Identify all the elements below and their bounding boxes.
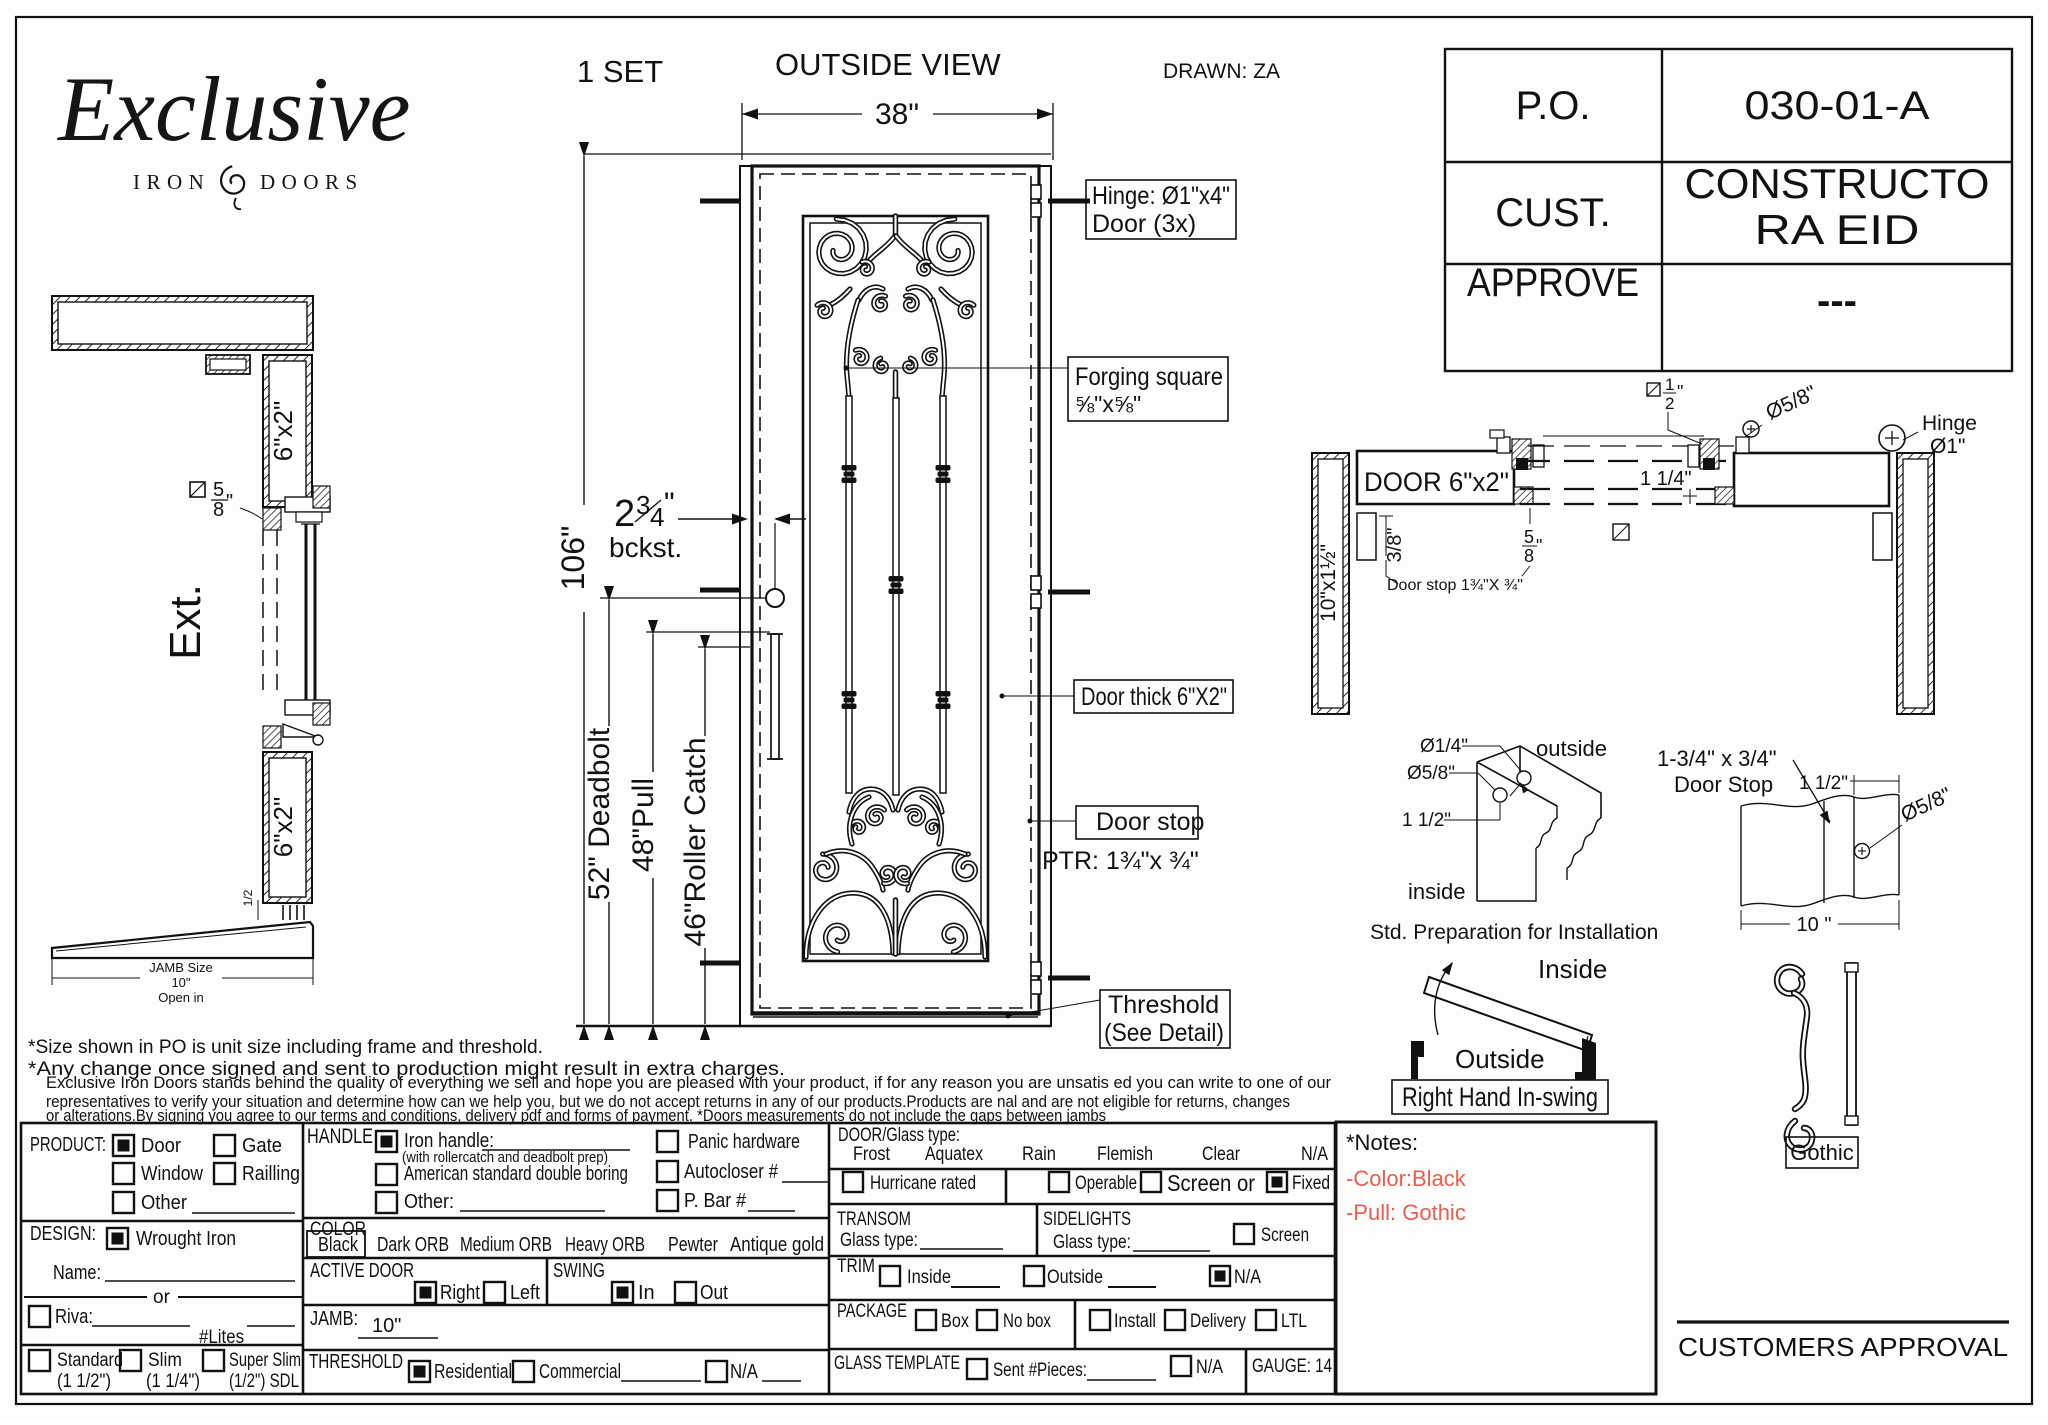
svg-text:4: 4 xyxy=(650,502,664,532)
svg-text:N/A: N/A xyxy=(1301,1144,1328,1165)
svg-text:#Lites: #Lites xyxy=(199,1327,244,1348)
svg-text:JAMB:: JAMB: xyxy=(310,1308,358,1330)
svg-text:Right: Right xyxy=(440,1282,480,1304)
svg-text:SIDELIGHTS: SIDELIGHTS xyxy=(1043,1209,1131,1230)
svg-text:Left: Left xyxy=(510,1282,540,1304)
svg-text:": " xyxy=(1677,382,1683,402)
svg-text:Glass type:: Glass type: xyxy=(1053,1232,1131,1253)
svg-text:Gothic: Gothic xyxy=(1790,1140,1854,1165)
svg-text:1/2: 1/2 xyxy=(241,889,255,906)
svg-text:Outside: Outside xyxy=(1047,1267,1103,1288)
svg-text:Heavy ORB: Heavy ORB xyxy=(565,1234,645,1256)
svg-text:1 SET: 1 SET xyxy=(577,54,663,89)
svg-text:": " xyxy=(664,487,675,520)
svg-text:5: 5 xyxy=(213,479,224,501)
svg-text:8: 8 xyxy=(1524,546,1534,566)
svg-text:LTL: LTL xyxy=(1281,1311,1307,1332)
svg-text:OUTSIDE VIEW: OUTSIDE VIEW xyxy=(775,47,1001,82)
svg-text:PRODUCT:: PRODUCT: xyxy=(30,1134,106,1156)
svg-text:10": 10" xyxy=(372,1315,401,1337)
svg-text:(See Detail): (See Detail) xyxy=(1104,1019,1224,1047)
svg-text:P.O.: P.O. xyxy=(1516,84,1591,128)
svg-text:030-01-A: 030-01-A xyxy=(1745,84,1930,128)
svg-text:No box: No box xyxy=(1003,1311,1051,1332)
svg-text:JAMB Size: JAMB Size xyxy=(149,960,213,975)
svg-text:Ø5/8": Ø5/8" xyxy=(1407,763,1455,784)
svg-text:TRANSOM: TRANSOM xyxy=(837,1209,911,1230)
svg-text:Dark ORB: Dark ORB xyxy=(377,1234,449,1256)
svg-text:Super Slim: Super Slim xyxy=(229,1350,301,1371)
svg-text:---: --- xyxy=(1817,279,1857,323)
svg-text:outside: outside xyxy=(1536,736,1607,761)
svg-text:Ø1": Ø1" xyxy=(1930,435,1965,458)
svg-text:Aquatex: Aquatex xyxy=(925,1144,983,1165)
svg-text:Residential: Residential xyxy=(434,1361,512,1383)
svg-text:Riva:: Riva: xyxy=(55,1306,93,1328)
svg-text:1 1/2": 1 1/2" xyxy=(1402,810,1451,831)
svg-text:Antique gold: Antique gold xyxy=(730,1234,824,1256)
svg-text:Screen: Screen xyxy=(1261,1225,1309,1246)
svg-text:2: 2 xyxy=(614,493,635,535)
svg-text:RA EID: RA EID xyxy=(1755,206,1920,253)
svg-text:": " xyxy=(226,491,233,513)
svg-text:3/8": 3/8" xyxy=(1384,528,1406,563)
svg-text:Ext.: Ext. xyxy=(161,584,210,660)
svg-text:Install: Install xyxy=(1114,1311,1156,1332)
svg-text:52" Deadbolt: 52" Deadbolt xyxy=(583,727,616,900)
svg-text:Door (3x): Door (3x) xyxy=(1092,210,1196,238)
svg-text:6"x2": 6"x2" xyxy=(268,797,298,857)
svg-text:bckst.: bckst. xyxy=(609,532,682,563)
svg-text:38": 38" xyxy=(875,98,919,131)
svg-text:DRAWN: ZA: DRAWN: ZA xyxy=(1163,60,1280,83)
svg-text:SWING: SWING xyxy=(553,1260,605,1282)
svg-text:2: 2 xyxy=(1665,394,1674,413)
svg-text:Out: Out xyxy=(700,1282,728,1304)
svg-text:": " xyxy=(1536,536,1542,556)
svg-text:6"x2": 6"x2" xyxy=(268,401,298,461)
svg-text:Railling: Railling xyxy=(242,1163,300,1185)
svg-text:Clear: Clear xyxy=(1202,1144,1241,1165)
svg-text:Door: Door xyxy=(141,1135,181,1157)
svg-text:Fixed: Fixed xyxy=(1292,1173,1330,1194)
svg-text:Box: Box xyxy=(941,1311,969,1332)
svg-text:5: 5 xyxy=(1524,527,1534,547)
svg-text:TRIM: TRIM xyxy=(837,1256,875,1277)
svg-text:DESIGN:: DESIGN: xyxy=(30,1223,96,1245)
svg-text:CONSTRUCTO: CONSTRUCTO xyxy=(1685,160,1990,207)
svg-text:Other: Other xyxy=(141,1192,187,1214)
svg-text:1 1/4": 1 1/4" xyxy=(1640,468,1692,490)
svg-text:(1 1/2"): (1 1/2") xyxy=(57,1371,111,1392)
svg-text:Pewter: Pewter xyxy=(668,1234,718,1256)
svg-text:Panic hardware: Panic hardware xyxy=(688,1131,800,1153)
svg-text:Threshold: Threshold xyxy=(1108,991,1219,1019)
svg-text:Other:: Other: xyxy=(404,1191,454,1213)
svg-text:CUSTOMERS APPROVAL: CUSTOMERS APPROVAL xyxy=(1678,1332,2008,1362)
svg-text:Operable: Operable xyxy=(1075,1173,1137,1194)
svg-text:46"Roller Catch: 46"Roller Catch xyxy=(679,737,712,946)
svg-text:8: 8 xyxy=(213,499,224,521)
svg-text:⅝"x⅝": ⅝"x⅝" xyxy=(1075,391,1141,417)
svg-text:Wrought Iron: Wrought Iron xyxy=(136,1228,236,1250)
svg-text:Hurricane rated: Hurricane rated xyxy=(870,1173,976,1194)
svg-text:Glass type:: Glass type: xyxy=(840,1230,918,1251)
svg-text:Outside: Outside xyxy=(1455,1044,1545,1074)
svg-text:or: or xyxy=(153,1287,171,1308)
svg-text:Autocloser #: Autocloser # xyxy=(684,1161,779,1183)
svg-text:ACTIVE DOOR: ACTIVE DOOR xyxy=(310,1260,414,1282)
svg-text:Open in: Open in xyxy=(158,990,204,1005)
svg-text:DOOR 6"x2": DOOR 6"x2" xyxy=(1364,467,1509,497)
svg-text:Ø1/4": Ø1/4" xyxy=(1420,736,1468,757)
svg-text:(1/2") SDL: (1/2") SDL xyxy=(229,1371,299,1392)
svg-text:10"x1½": 10"x1½" xyxy=(1317,544,1340,622)
svg-text:Gate: Gate xyxy=(242,1135,282,1157)
svg-text:Door thick 6"X2": Door thick 6"X2" xyxy=(1081,683,1227,711)
svg-text:1: 1 xyxy=(1665,375,1674,394)
svg-text:Door stop 1¾"X ¾": Door stop 1¾"X ¾" xyxy=(1387,577,1523,594)
svg-text:Rain: Rain xyxy=(1022,1144,1056,1165)
svg-text:HANDLE: HANDLE xyxy=(307,1125,373,1148)
svg-text:-Color:Black: -Color:Black xyxy=(1346,1166,1467,1191)
svg-text:(1 1/4"): (1 1/4") xyxy=(146,1371,200,1392)
svg-text:inside: inside xyxy=(1408,879,1465,904)
svg-text:Door Stop: Door Stop xyxy=(1674,772,1773,797)
svg-text:Window: Window xyxy=(141,1163,203,1185)
svg-text:Flemish: Flemish xyxy=(1097,1144,1153,1165)
svg-text:Right Hand In-swing: Right Hand In-swing xyxy=(1402,1082,1598,1112)
svg-text:Inside: Inside xyxy=(907,1267,951,1288)
svg-text:Std. Preparation for Installat: Std. Preparation for Installation xyxy=(1370,921,1658,944)
svg-text:Exclusive Iron Doors stands be: Exclusive Iron Doors stands behind the q… xyxy=(46,1074,1332,1092)
svg-text:Black: Black xyxy=(318,1234,359,1256)
svg-text:Screen or: Screen or xyxy=(1167,1170,1255,1196)
svg-text:48"Pull: 48"Pull xyxy=(627,778,660,872)
svg-text:Door stop: Door stop xyxy=(1096,808,1204,836)
svg-text:DOORS: DOORS xyxy=(260,170,364,194)
svg-text:APPROVE: APPROVE xyxy=(1467,261,1639,305)
svg-text:10 ": 10 " xyxy=(1797,914,1832,936)
svg-text:In: In xyxy=(638,1282,655,1304)
svg-text:Delivery: Delivery xyxy=(1190,1311,1246,1332)
svg-text:PACKAGE: PACKAGE xyxy=(837,1301,907,1322)
svg-text:*Notes:: *Notes: xyxy=(1346,1130,1418,1155)
svg-text:1-3/4" x 3/4": 1-3/4" x 3/4" xyxy=(1657,746,1777,771)
svg-text:Commercial: Commercial xyxy=(539,1361,621,1383)
svg-text:American standard double borin: American standard double boring xyxy=(404,1163,628,1185)
svg-text:Sent #Pieces:: Sent #Pieces: xyxy=(993,1360,1087,1381)
svg-text:P. Bar #: P. Bar # xyxy=(684,1190,747,1212)
svg-text:Forging square: Forging square xyxy=(1075,363,1223,391)
svg-text:N/A: N/A xyxy=(730,1361,759,1383)
svg-text:Inside: Inside xyxy=(1538,954,1607,984)
svg-text:N/A: N/A xyxy=(1234,1267,1261,1288)
svg-text:Exclusive: Exclusive xyxy=(56,58,410,160)
svg-text:106": 106" xyxy=(555,526,591,591)
svg-text:*Size shown in PO is unit size: *Size shown in PO is unit size including… xyxy=(28,1036,543,1058)
svg-text:CUST.: CUST. xyxy=(1495,191,1611,235)
svg-text:Medium ORB: Medium ORB xyxy=(460,1234,552,1256)
svg-text:IRON: IRON xyxy=(133,170,210,194)
svg-text:Name:: Name: xyxy=(53,1262,101,1284)
svg-text:Hinge: Hinge xyxy=(1922,412,1977,435)
svg-text:PTR: 1¾"x ¾": PTR: 1¾"x ¾" xyxy=(1042,847,1199,875)
svg-text:Standard: Standard xyxy=(57,1350,123,1371)
svg-text:THRESHOLD: THRESHOLD xyxy=(309,1351,403,1373)
svg-text:1 1/2": 1 1/2" xyxy=(1799,773,1848,794)
svg-text:DOOR/Glass type:: DOOR/Glass type: xyxy=(838,1125,960,1146)
svg-text:-Pull: Gothic: -Pull: Gothic xyxy=(1346,1200,1466,1225)
svg-text:10": 10" xyxy=(171,975,190,990)
svg-text:N/A: N/A xyxy=(1196,1357,1223,1378)
svg-text:GAUGE: 14: GAUGE: 14 xyxy=(1252,1356,1332,1377)
svg-text:Frost: Frost xyxy=(853,1144,891,1165)
svg-text:Hinge: Ø1"x4": Hinge: Ø1"x4" xyxy=(1092,182,1230,210)
svg-text:Slim: Slim xyxy=(148,1350,182,1371)
svg-text:GLASS TEMPLATE: GLASS TEMPLATE xyxy=(834,1353,960,1374)
